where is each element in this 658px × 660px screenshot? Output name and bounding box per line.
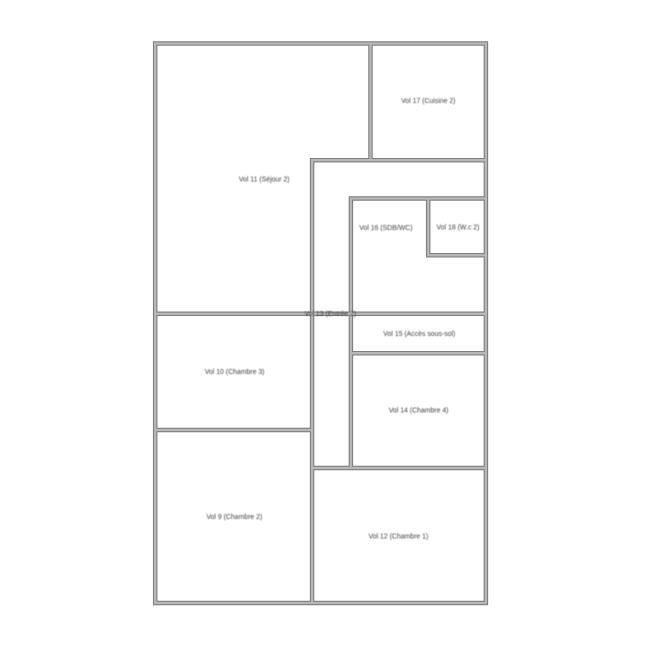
svg-text:Vol 9 (Chambre 2): Vol 9 (Chambre 2): [206, 514, 262, 521]
svg-text:Vol 18 (W.c 2): Vol 18 (W.c 2): [437, 225, 480, 232]
svg-text:Vol 10 (Chambre 3): Vol 10 (Chambre 3): [205, 369, 265, 376]
svg-text:Vol 16 (SDB/WC): Vol 16 (SDB/WC): [359, 225, 412, 232]
svg-text:Vol 14 (Chambre 4): Vol 14 (Chambre 4): [389, 407, 449, 414]
svg-text:Vol 15 (Accès sous-sol): Vol 15 (Accès sous-sol): [383, 331, 455, 338]
svg-text:Vol 11 (Séjour 2): Vol 11 (Séjour 2): [239, 177, 290, 184]
svg-text:Vol 12 (Chambre 1): Vol 12 (Chambre 1): [369, 534, 429, 541]
svg-text:Vol 13 (Entrée 2): Vol 13 (Entrée 2): [304, 311, 356, 318]
svg-text:Vol 17 (Cuisine 2): Vol 17 (Cuisine 2): [401, 98, 455, 105]
